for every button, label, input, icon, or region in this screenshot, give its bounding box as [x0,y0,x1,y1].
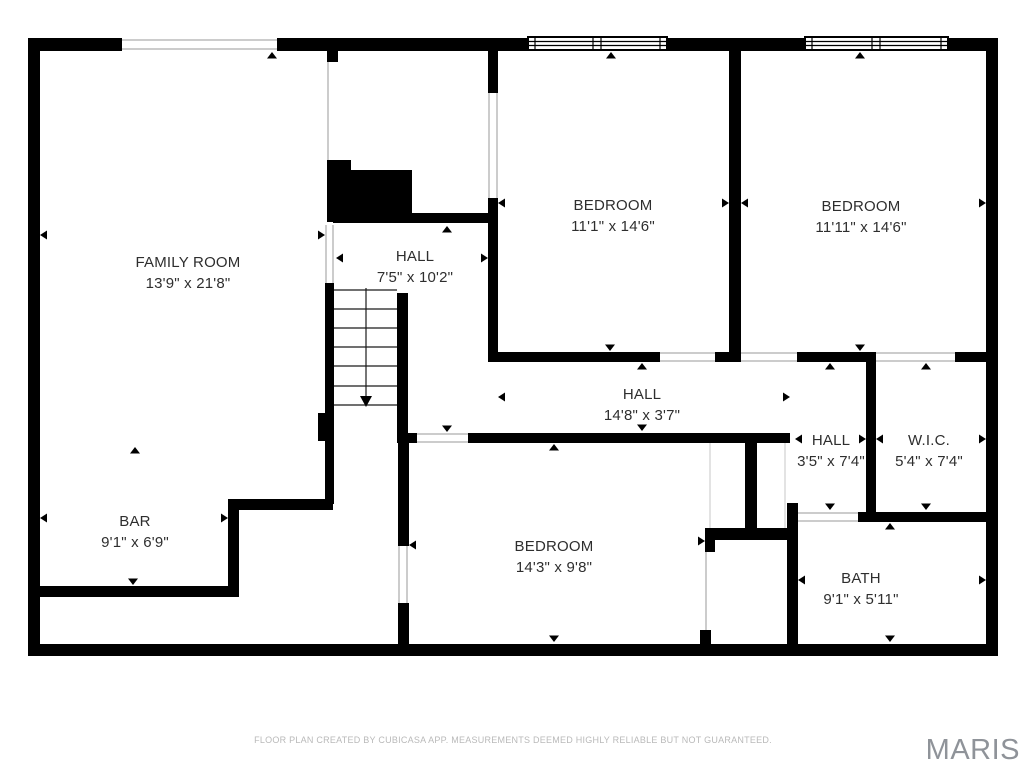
room-label-bar: BAR 9'1" x 6'9" [101,511,169,553]
fireplace-block [327,160,412,222]
room-dimensions: 13'9" x 21'8" [136,273,241,294]
room-dimensions: 9'1" x 6'9" [101,532,169,553]
room-label-hall-small: HALL 3'5" x 7'4" [797,430,865,472]
room-name: HALL [604,384,680,405]
dimension-arrows [40,52,986,642]
room-dimensions: 9'1" x 5'11" [823,589,898,610]
room-name: HALL [377,246,453,267]
footer-disclaimer: FLOOR PLAN CREATED BY CUBICASA APP. MEAS… [254,735,772,745]
room-label-bedroom-bottom: BEDROOM 14'3" x 9'8" [515,536,594,578]
room-label-family-room: FAMILY ROOM 13'9" x 21'8" [136,252,241,294]
window-icon [805,37,948,50]
room-name: BATH [823,568,898,589]
room-label-bedroom-top-middle: BEDROOM 11'1" x 14'6" [571,195,655,237]
room-name: HALL [797,430,865,451]
room-dimensions: 14'3" x 9'8" [515,557,594,578]
interior-walls [28,47,986,644]
wall-opening-top-left [122,40,277,49]
room-dimensions: 5'4" x 7'4" [895,451,963,472]
maris-watermark: MARIS [926,736,1020,765]
room-dimensions: 11'1" x 14'6" [571,216,655,237]
room-name: BAR [101,511,169,532]
room-label-wic: W.I.C. 5'4" x 7'4" [895,430,963,472]
room-dimensions: 7'5" x 10'2" [377,267,453,288]
room-name: BEDROOM [515,536,594,557]
window-icon [528,37,667,50]
room-name: W.I.C. [895,430,963,451]
room-label-hall-upper: HALL 7'5" x 10'2" [377,246,453,288]
stairs-icon [334,288,397,407]
room-label-bath: BATH 9'1" x 5'11" [823,568,898,610]
floor-plan: FAMILY ROOM 13'9" x 21'8" HALL 7'5" x 10… [0,0,1024,767]
floor-plan-drawing [0,0,1024,767]
room-dimensions: 11'11" x 14'6" [815,217,906,238]
room-name: BEDROOM [571,195,655,216]
room-dimensions: 3'5" x 7'4" [797,451,865,472]
exterior-walls [28,38,998,656]
room-name: FAMILY ROOM [136,252,241,273]
room-label-bedroom-top-right: BEDROOM 11'11" x 14'6" [815,196,906,238]
room-dimensions: 14'8" x 3'7" [604,405,680,426]
room-name: BEDROOM [815,196,906,217]
room-label-hall-middle: HALL 14'8" x 3'7" [604,384,680,426]
